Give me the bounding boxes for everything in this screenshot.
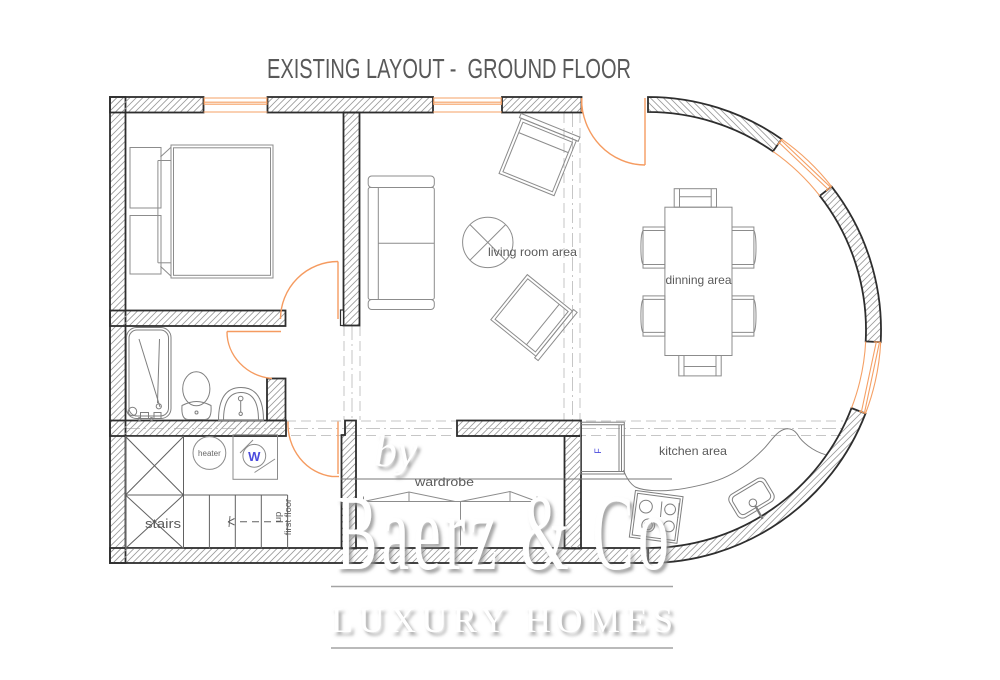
svg-text:living room area: living room area [488,245,577,259]
svg-text:F: F [593,448,603,454]
svg-text:W: W [248,449,261,464]
svg-text:stairs: stairs [145,516,182,531]
svg-text:by: by [374,425,418,476]
svg-text:kitchen area: kitchen area [659,444,727,458]
svg-text:dinning area: dinning area [666,273,732,287]
svg-text:first floor: first floor [283,499,294,535]
svg-text:EXISTING LAYOUT - GROUND FLOO: EXISTING LAYOUT - GROUND FLOOR [267,53,631,84]
svg-text:LUXURY HOMES: LUXURY HOMES [331,600,673,640]
svg-text:Baerz & Co: Baerz & Co [336,474,673,593]
svg-text:heater: heater [198,449,221,458]
